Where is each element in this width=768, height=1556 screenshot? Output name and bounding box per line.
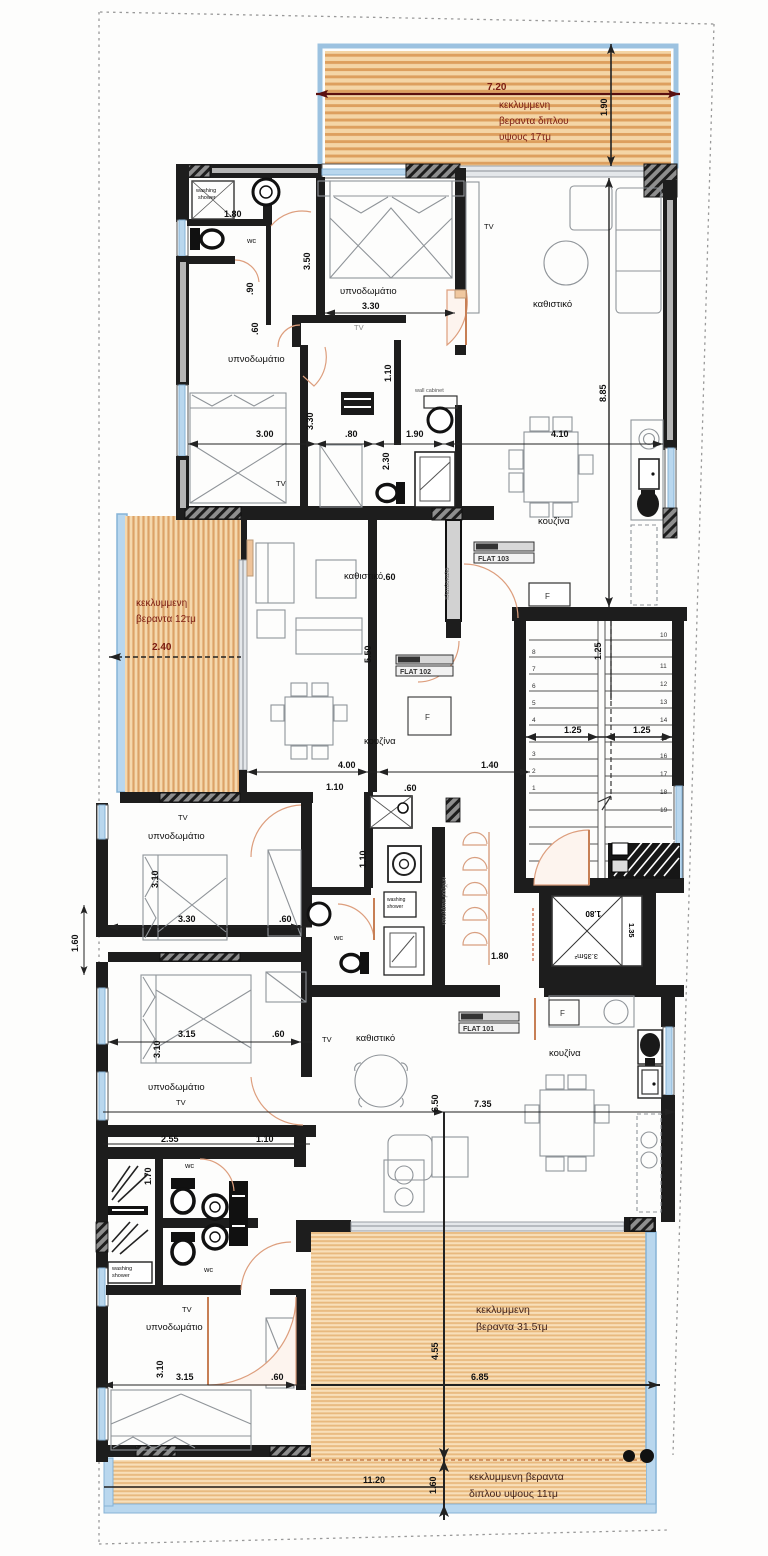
svg-text:1.25: 1.25 bbox=[564, 725, 582, 735]
svg-text:FLAT 102: FLAT 102 bbox=[400, 669, 431, 676]
svg-text:shower: shower bbox=[387, 904, 403, 910]
svg-text:κεκλυμμενη βεραντα: κεκλυμμενη βεραντα bbox=[469, 1471, 564, 1483]
svg-text:3: 3 bbox=[532, 751, 536, 758]
svg-text:6.50: 6.50 bbox=[430, 1094, 440, 1112]
svg-text:10: 10 bbox=[660, 632, 668, 639]
svg-text:8.85: 8.85 bbox=[598, 384, 608, 402]
svg-text:ντουλάπα ρούχων: ντουλάπα ρούχων bbox=[441, 877, 448, 925]
svg-text:1.25: 1.25 bbox=[633, 725, 651, 735]
svg-text:1.80: 1.80 bbox=[585, 909, 601, 918]
svg-text:TV: TV bbox=[354, 323, 364, 332]
svg-text:shower: shower bbox=[112, 1273, 130, 1279]
svg-text:16: 16 bbox=[660, 753, 668, 760]
svg-text:.80: .80 bbox=[345, 429, 358, 439]
svg-text:καθιστικό: καθιστικό bbox=[344, 571, 383, 582]
svg-text:κουζίνα: κουζίνα bbox=[538, 516, 570, 527]
svg-text:1.10: 1.10 bbox=[383, 364, 393, 382]
svg-text:4.10: 4.10 bbox=[551, 429, 569, 439]
svg-text:υπνοδωμάτιο: υπνοδωμάτιο bbox=[148, 831, 205, 842]
svg-text:8: 8 bbox=[532, 649, 536, 656]
svg-text:11.20: 11.20 bbox=[363, 1475, 385, 1485]
svg-text:washing: washing bbox=[387, 897, 406, 903]
svg-text:18: 18 bbox=[660, 789, 668, 796]
svg-text:wc: wc bbox=[184, 1161, 194, 1170]
svg-text:υπνοδωμάτιο: υπνοδωμάτιο bbox=[148, 1082, 205, 1093]
svg-text:.90: .90 bbox=[245, 282, 255, 295]
svg-text:F: F bbox=[425, 713, 430, 722]
svg-text:wc: wc bbox=[246, 236, 256, 245]
svg-text:FLAT 101: FLAT 101 bbox=[463, 1026, 494, 1033]
svg-text:3.30: 3.30 bbox=[362, 301, 380, 311]
svg-text:washing: washing bbox=[111, 1266, 132, 1272]
svg-text:1.90: 1.90 bbox=[599, 98, 609, 116]
svg-text:2.30: 2.30 bbox=[381, 452, 391, 470]
svg-text:πλατύσκαλο: πλατύσκαλο bbox=[445, 567, 451, 600]
svg-text:11: 11 bbox=[660, 663, 667, 670]
svg-text:3.30: 3.30 bbox=[305, 412, 315, 430]
svg-text:.60: .60 bbox=[383, 572, 396, 582]
svg-text:TV: TV bbox=[276, 479, 286, 488]
svg-text:7.20: 7.20 bbox=[487, 82, 507, 93]
svg-text:TV: TV bbox=[178, 813, 188, 822]
svg-text:βεραντα 12τμ: βεραντα 12τμ bbox=[136, 614, 196, 625]
svg-text:κεκλυμμενη: κεκλυμμενη bbox=[476, 1304, 530, 1316]
svg-text:διπλου υψους 11τμ: διπλου υψους 11τμ bbox=[469, 1488, 558, 1500]
svg-text:2.55: 2.55 bbox=[161, 1134, 179, 1144]
svg-text:5: 5 bbox=[532, 700, 536, 707]
svg-text:.60: .60 bbox=[272, 1029, 285, 1039]
svg-text:βεραντα διπλου: βεραντα διπλου bbox=[499, 116, 569, 127]
svg-text:4: 4 bbox=[532, 717, 536, 724]
svg-text:3.15: 3.15 bbox=[176, 1372, 194, 1382]
svg-text:1.10: 1.10 bbox=[326, 782, 344, 792]
svg-text:6: 6 bbox=[532, 683, 536, 690]
svg-text:7.35: 7.35 bbox=[474, 1099, 492, 1109]
svg-text:.60: .60 bbox=[271, 1372, 284, 1382]
svg-text:2.40: 2.40 bbox=[152, 642, 172, 653]
svg-text:1: 1 bbox=[532, 785, 536, 792]
svg-text:υψους 17τμ: υψους 17τμ bbox=[499, 132, 551, 143]
svg-text:TV: TV bbox=[322, 1035, 332, 1044]
svg-text:κεκλυμμενη: κεκλυμμενη bbox=[136, 598, 187, 609]
svg-text:12: 12 bbox=[660, 681, 668, 688]
svg-text:17: 17 bbox=[660, 771, 668, 778]
svg-text:4.55: 4.55 bbox=[430, 1342, 440, 1360]
svg-text:.60: .60 bbox=[404, 783, 417, 793]
svg-text:1.10: 1.10 bbox=[256, 1134, 274, 1144]
svg-text:1.80: 1.80 bbox=[224, 209, 242, 219]
svg-text:F: F bbox=[560, 1009, 565, 1018]
svg-text:καθιστικό: καθιστικό bbox=[356, 1033, 395, 1044]
svg-text:3.10: 3.10 bbox=[152, 1040, 162, 1058]
svg-text:F: F bbox=[545, 592, 550, 601]
svg-text:1.40: 1.40 bbox=[481, 760, 499, 770]
svg-text:3.30: 3.30 bbox=[178, 914, 196, 924]
svg-text:.60: .60 bbox=[279, 914, 292, 924]
svg-text:TV: TV bbox=[484, 222, 494, 231]
svg-text:7: 7 bbox=[532, 666, 536, 673]
svg-text:5.50: 5.50 bbox=[363, 645, 373, 663]
svg-text:washing: washing bbox=[195, 188, 216, 194]
svg-text:2: 2 bbox=[532, 768, 536, 775]
svg-text:shower: shower bbox=[198, 195, 216, 201]
svg-text:6.85: 6.85 bbox=[471, 1372, 489, 1382]
svg-text:κεκλυμμενη: κεκλυμμενη bbox=[499, 100, 550, 111]
svg-text:1.25: 1.25 bbox=[593, 642, 603, 660]
svg-text:TV: TV bbox=[182, 1305, 192, 1314]
svg-text:wall cabinet: wall cabinet bbox=[414, 388, 444, 394]
svg-text:υπνοδωμάτιο: υπνοδωμάτιο bbox=[228, 354, 285, 365]
svg-text:3.35m²: 3.35m² bbox=[574, 952, 598, 961]
svg-text:FLAT 103: FLAT 103 bbox=[478, 556, 509, 563]
svg-text:13: 13 bbox=[660, 699, 668, 706]
svg-text:4.00: 4.00 bbox=[338, 760, 356, 770]
svg-text:1.90: 1.90 bbox=[406, 429, 424, 439]
svg-text:1.60: 1.60 bbox=[70, 934, 80, 952]
svg-text:3.10: 3.10 bbox=[150, 870, 160, 888]
svg-text:1.70: 1.70 bbox=[143, 1167, 153, 1185]
svg-text:3.15: 3.15 bbox=[178, 1029, 196, 1039]
svg-text:βεραντα 31.5τμ: βεραντα 31.5τμ bbox=[476, 1321, 548, 1333]
svg-text:wc: wc bbox=[203, 1265, 213, 1274]
svg-text:καθιστικό: καθιστικό bbox=[533, 299, 572, 310]
svg-text:1.60: 1.60 bbox=[428, 1476, 438, 1494]
svg-text:.60: .60 bbox=[250, 322, 260, 335]
svg-text:1.10: 1.10 bbox=[358, 850, 368, 868]
svg-text:19: 19 bbox=[660, 807, 668, 814]
svg-text:υπνοδωμάτιο: υπνοδωμάτιο bbox=[146, 1322, 203, 1333]
svg-text:3.10: 3.10 bbox=[155, 1360, 165, 1378]
svg-text:υπνοδωμάτιο: υπνοδωμάτιο bbox=[340, 286, 397, 297]
svg-text:κουζίνα: κουζίνα bbox=[549, 1048, 581, 1059]
svg-text:κουζίνα: κουζίνα bbox=[364, 736, 396, 747]
svg-text:3.00: 3.00 bbox=[256, 429, 274, 439]
svg-text:wc: wc bbox=[333, 933, 343, 942]
svg-text:TV: TV bbox=[176, 1098, 186, 1107]
svg-text:1.80: 1.80 bbox=[491, 951, 509, 961]
svg-text:1.35: 1.35 bbox=[627, 923, 636, 938]
svg-text:3.50: 3.50 bbox=[302, 252, 312, 270]
svg-text:14: 14 bbox=[660, 717, 668, 724]
